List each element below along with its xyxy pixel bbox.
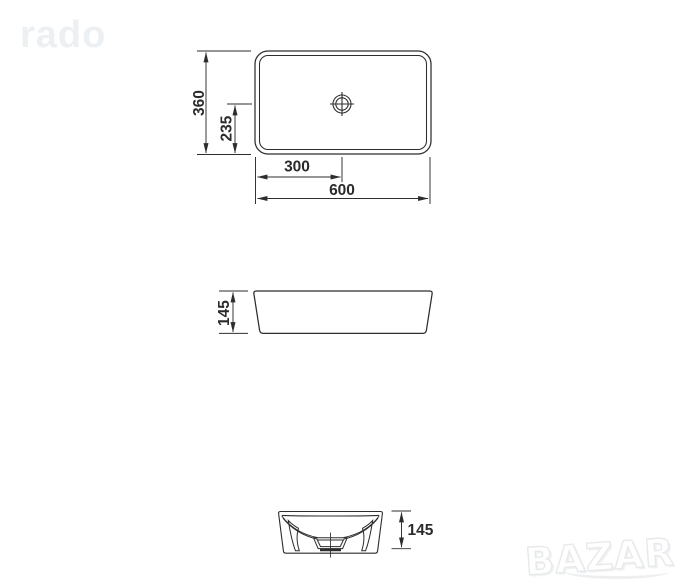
drawing-page: rado	[0, 0, 683, 581]
basin-side-profile	[254, 291, 432, 333]
dim-label-front-145: 145	[408, 522, 434, 539]
basin-outer-rim	[255, 51, 431, 154]
top-view	[255, 51, 431, 154]
front-view	[279, 512, 383, 558]
washbasin-technical-drawing: 360 235 300 600 145	[0, 0, 683, 581]
basin-front-rim-line	[282, 515, 379, 516]
dim-label-600: 600	[329, 182, 355, 199]
side-view	[254, 291, 432, 333]
drain-symbol	[330, 92, 354, 116]
basin-inner-rim	[260, 56, 427, 150]
dim-label-360: 360	[191, 90, 208, 116]
dim-label-300: 300	[284, 159, 310, 176]
dim-label-side-145: 145	[216, 300, 233, 326]
dim-label-235: 235	[219, 115, 236, 141]
